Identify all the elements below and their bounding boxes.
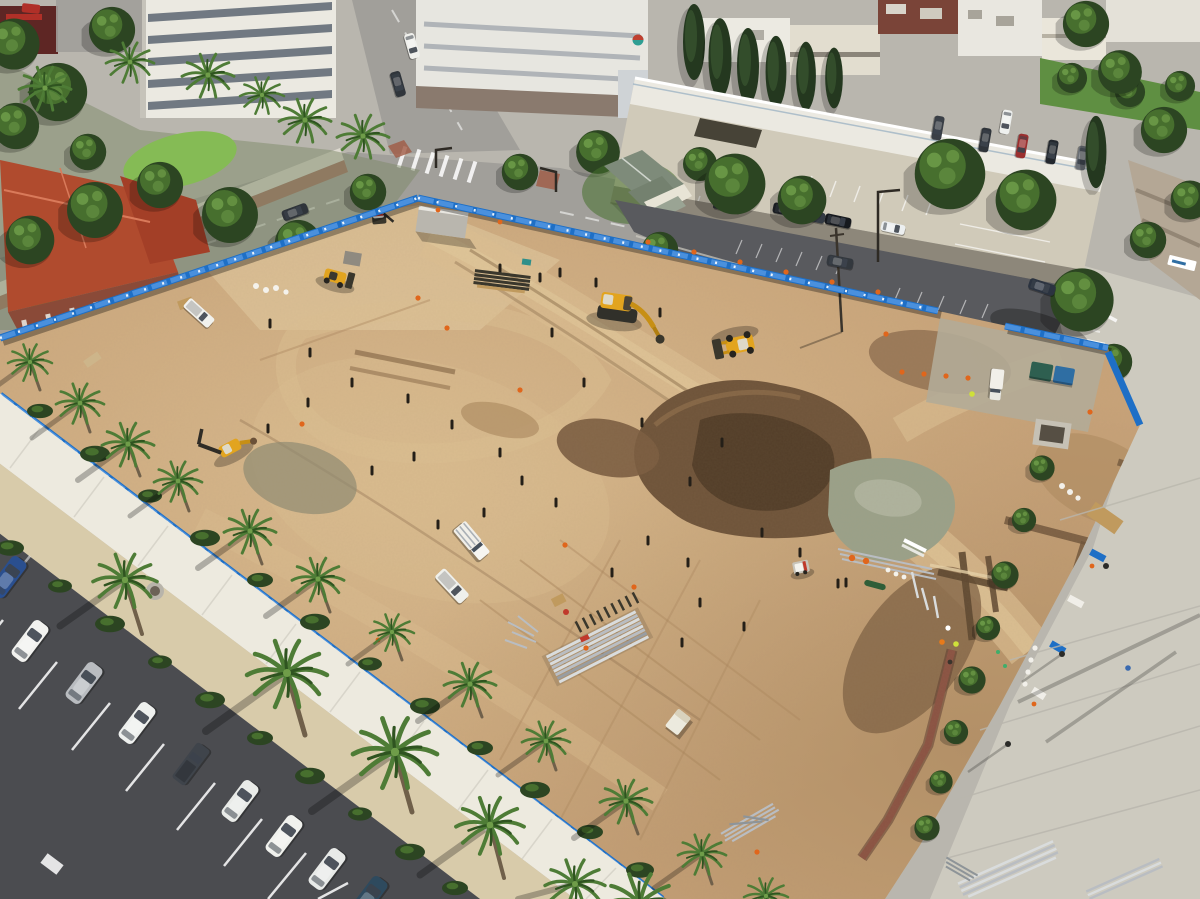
orange-bucket (849, 555, 855, 561)
worker (969, 391, 975, 397)
balloon-mural (633, 35, 644, 46)
worker-helmet (945, 625, 950, 630)
red-cap-item (563, 609, 569, 615)
aerial-construction-photo: Aerial drone view of a downtown construc… (0, 0, 1200, 899)
worker (948, 660, 953, 665)
teal-box (522, 258, 532, 265)
worker-vest (953, 641, 959, 647)
orange-bucket (863, 558, 869, 564)
green-stake (1003, 664, 1007, 668)
worker-vest (939, 639, 945, 645)
concrete-vault (1032, 419, 1071, 450)
aerial-photo-stage: Aerial drone view of a downtown construc… (0, 0, 1200, 899)
worker-blue (1125, 665, 1131, 671)
red-truck (22, 3, 41, 14)
green-stake (996, 650, 1000, 654)
office-tower (140, 0, 336, 118)
